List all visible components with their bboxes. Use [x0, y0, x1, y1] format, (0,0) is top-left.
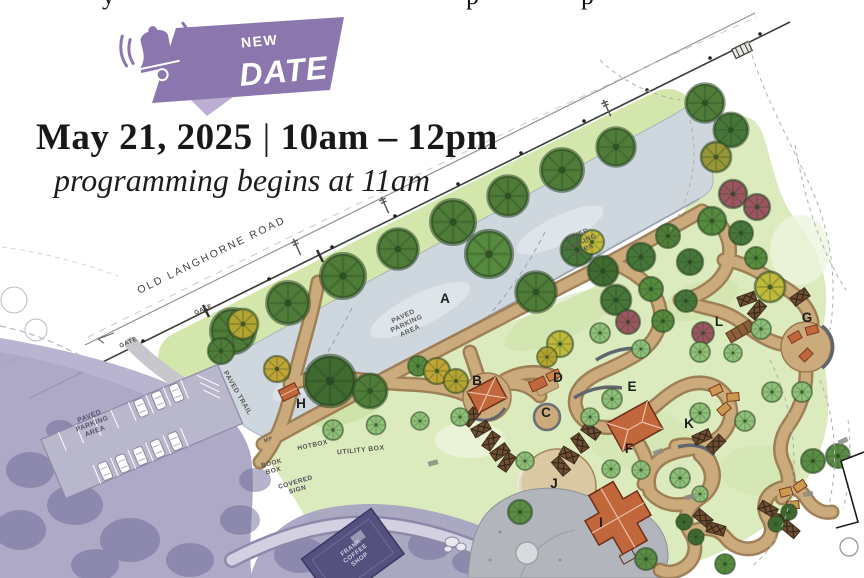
cropped-glyph: p	[581, 0, 594, 10]
flyer-canvas: ABCDEFGHIJKLOLD LANGHORNE ROADGATEGATEPA…	[0, 0, 864, 578]
map-label-gate: GATE	[193, 303, 213, 317]
area-letter-k: K	[684, 416, 694, 431]
event-time: 10am – 12pm	[281, 117, 498, 158]
area-letter-i: I	[599, 515, 603, 530]
event-date-heading: May 21, 2025|10am – 12pm	[36, 116, 576, 159]
area-letter-a: A	[440, 291, 450, 306]
cropped-glyph: p	[466, 0, 479, 10]
area-letter-f: F	[625, 441, 633, 456]
area-letter-b: B	[472, 373, 482, 388]
area-letter-g: G	[802, 310, 813, 325]
area-letter-c: C	[541, 405, 551, 420]
area-letter-e: E	[627, 379, 636, 394]
area-letter-j: J	[550, 476, 558, 491]
badge-new-label: NEW	[240, 31, 278, 50]
area-letter-d: D	[553, 370, 563, 385]
programming-note: programming begins at 11am	[54, 162, 474, 199]
area-letter-l: L	[715, 314, 723, 329]
date-time-separator: |	[253, 117, 281, 158]
event-date: May 21, 2025	[36, 117, 253, 158]
new-date-badge: NEW DATE	[112, 4, 362, 129]
area-letter-h: H	[296, 396, 306, 411]
